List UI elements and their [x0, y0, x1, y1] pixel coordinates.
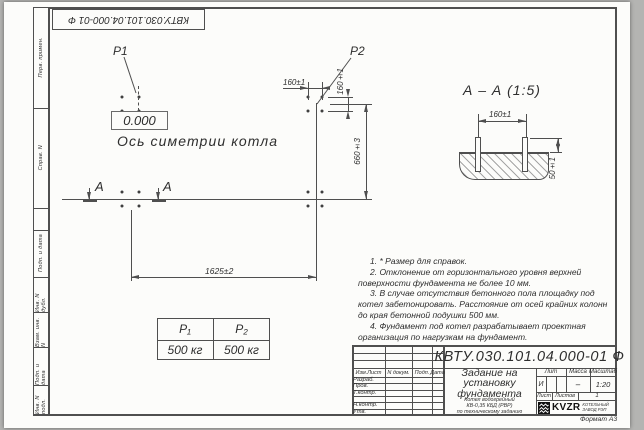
bolt-axis-centerline [138, 86, 139, 111]
note-2: 2. Отклонение от горизонтального уровня … [358, 267, 612, 289]
bolt-dot [121, 205, 124, 208]
titleblock-line [556, 376, 557, 392]
top-doc-number: КВТУ.030.101.04.000-01 Ф [68, 14, 189, 25]
dim-text-1625: 1625±2 [205, 266, 233, 276]
dim-line-660 [366, 104, 367, 199]
strip-label-sprav-n: Справ. N [33, 108, 48, 208]
dim-arrow [131, 275, 139, 279]
titleblock-sheet-label: Лист [536, 392, 552, 400]
bolt-dot [307, 191, 310, 194]
titleblock-line [412, 345, 413, 415]
kvzr-logo-icon [538, 402, 550, 414]
note-3: 3. В случае отсутствия бетонного пола пл… [358, 288, 612, 320]
load-label-p1: P1 [113, 44, 128, 58]
dim-line-160v [348, 97, 349, 111]
note-4: 4. Фундамент под котел разрабатывает про… [358, 321, 612, 343]
titleblock-mass-value: – [566, 376, 590, 392]
format-note: Формат А3 [580, 416, 617, 423]
load-table-value-p2: 500 кг [213, 340, 270, 360]
bolt-dot [307, 205, 310, 208]
technical-notes: 1. * Размер для справок. 2. Отклонение о… [358, 256, 612, 342]
ext-line [550, 152, 562, 153]
dim-arrow [364, 191, 368, 199]
dim-line-1625 [131, 277, 316, 278]
titleblock-doc-number: КВТУ.030.101.04.000-01 Ф [443, 345, 616, 368]
load-label-p2: P2 [350, 44, 365, 58]
titleblock-line [546, 376, 547, 392]
titleblock-col-izm: Изм.Лист [352, 368, 385, 377]
titleblock-title: Задание на установку фундамента [443, 369, 536, 398]
titleblock-sheets-label: Листов [552, 392, 578, 400]
concrete-foundation-hatch [459, 152, 549, 180]
titleblock-col-podp: Подп. [412, 368, 432, 377]
titleblock-row-utv: Утв. [353, 409, 385, 415]
dim-text-sect-160: 160±1 [489, 110, 511, 119]
dim-text-160v: 160±1 [334, 65, 346, 97]
section-view-title: А – А (1:5) [463, 82, 541, 98]
dim-arrow [364, 104, 368, 112]
anchor-bolt [475, 137, 481, 172]
titleblock-line [432, 345, 433, 415]
product-line-3: по техническому заданию [443, 410, 536, 416]
load-table-value-p1: 500 кг [157, 340, 213, 360]
ext-line [308, 82, 309, 100]
dim-text-50: 50±1 [546, 154, 558, 182]
dim-arrow [556, 144, 560, 152]
dim-arrow [518, 119, 526, 123]
strip-label-podp-data-1: Подп. и дата [33, 230, 48, 277]
top-doc-number-box: КВТУ.030.101.04.000-01 Ф [52, 9, 205, 30]
dim-text-160h: 160±1 [283, 78, 305, 87]
bolt-dot [138, 191, 141, 194]
titleblock-scale-value: 1:20 [590, 376, 616, 392]
section-mark-bar [83, 199, 97, 202]
titleblock-line [352, 360, 443, 361]
load-table-header-p1: P₁ [157, 318, 213, 340]
titleblock-line [352, 353, 443, 354]
titleblock-mass-label: Масса [566, 368, 590, 376]
dim-arrow [478, 119, 486, 123]
strip-label-perv-primen: Перв. примен. [33, 7, 48, 108]
bolt-dot [321, 110, 324, 113]
section-letter-left: А [95, 179, 104, 194]
bolt-dot [321, 191, 324, 194]
section-mark-bar [152, 199, 166, 202]
strip-label-vzam-inv: Взам. инв. N [33, 312, 48, 347]
ext-line [328, 97, 353, 98]
titleblock-lit-label: Лит [536, 368, 566, 376]
titleblock-lit-value: И [536, 376, 546, 392]
kvzr-logo-text: KVZR [552, 402, 580, 413]
kvzr-logo: KVZR КОТЕЛЬНЫЙ ЗАВОД РЭП [538, 401, 616, 414]
dim-arrow [346, 89, 350, 97]
kvzr-logo-caption: КОТЕЛЬНЫЙ ЗАВОД РЭП [582, 403, 608, 412]
bolt-dot [138, 205, 141, 208]
drawing-sheet: Перв. примен. Справ. N Подп. и дата Инв.… [0, 0, 644, 430]
symmetry-axis-line [62, 199, 372, 200]
titleblock-sheets-value: 1 [578, 392, 616, 400]
note-1: 1. * Размер для справок. [358, 256, 612, 267]
dim-arrow [322, 86, 330, 90]
strip-label-podp-data-2: Подп. и дата [33, 347, 48, 385]
bolt-dot [321, 205, 324, 208]
strip-label-inv-podl: Инв. N подл. [33, 385, 48, 414]
titleblock-col-ndokum: N докум. [385, 368, 412, 377]
titleblock-product: Котел водогрейный КВ-0,35 КБД (РВР) по т… [443, 398, 536, 415]
titleblock-line [385, 345, 386, 415]
dim-arrow [346, 111, 350, 119]
bolt-dot [121, 96, 124, 99]
strip-divider [33, 208, 48, 209]
anchor-bolt [522, 137, 528, 172]
load-table-header-p2: P₂ [213, 318, 270, 340]
ext-line [131, 210, 132, 281]
ext-line [526, 114, 527, 138]
titleblock-scale-label: Масштаб [590, 368, 616, 376]
bolt-dot [307, 110, 310, 113]
elevation-mark: 0.000 [111, 111, 168, 130]
strip-label-inv-dubl: Инв. N дубл. [33, 277, 48, 312]
bolt-dot [121, 191, 124, 194]
ext-line [316, 103, 317, 281]
frame-left [48, 7, 50, 415]
titleblock-col-data: Дата [432, 368, 443, 377]
dim-text-660: 660±3 [351, 132, 363, 170]
axis-label: Ось симетрии котла [117, 133, 278, 149]
section-letter-right: А [163, 179, 172, 194]
dim-arrow [308, 275, 316, 279]
